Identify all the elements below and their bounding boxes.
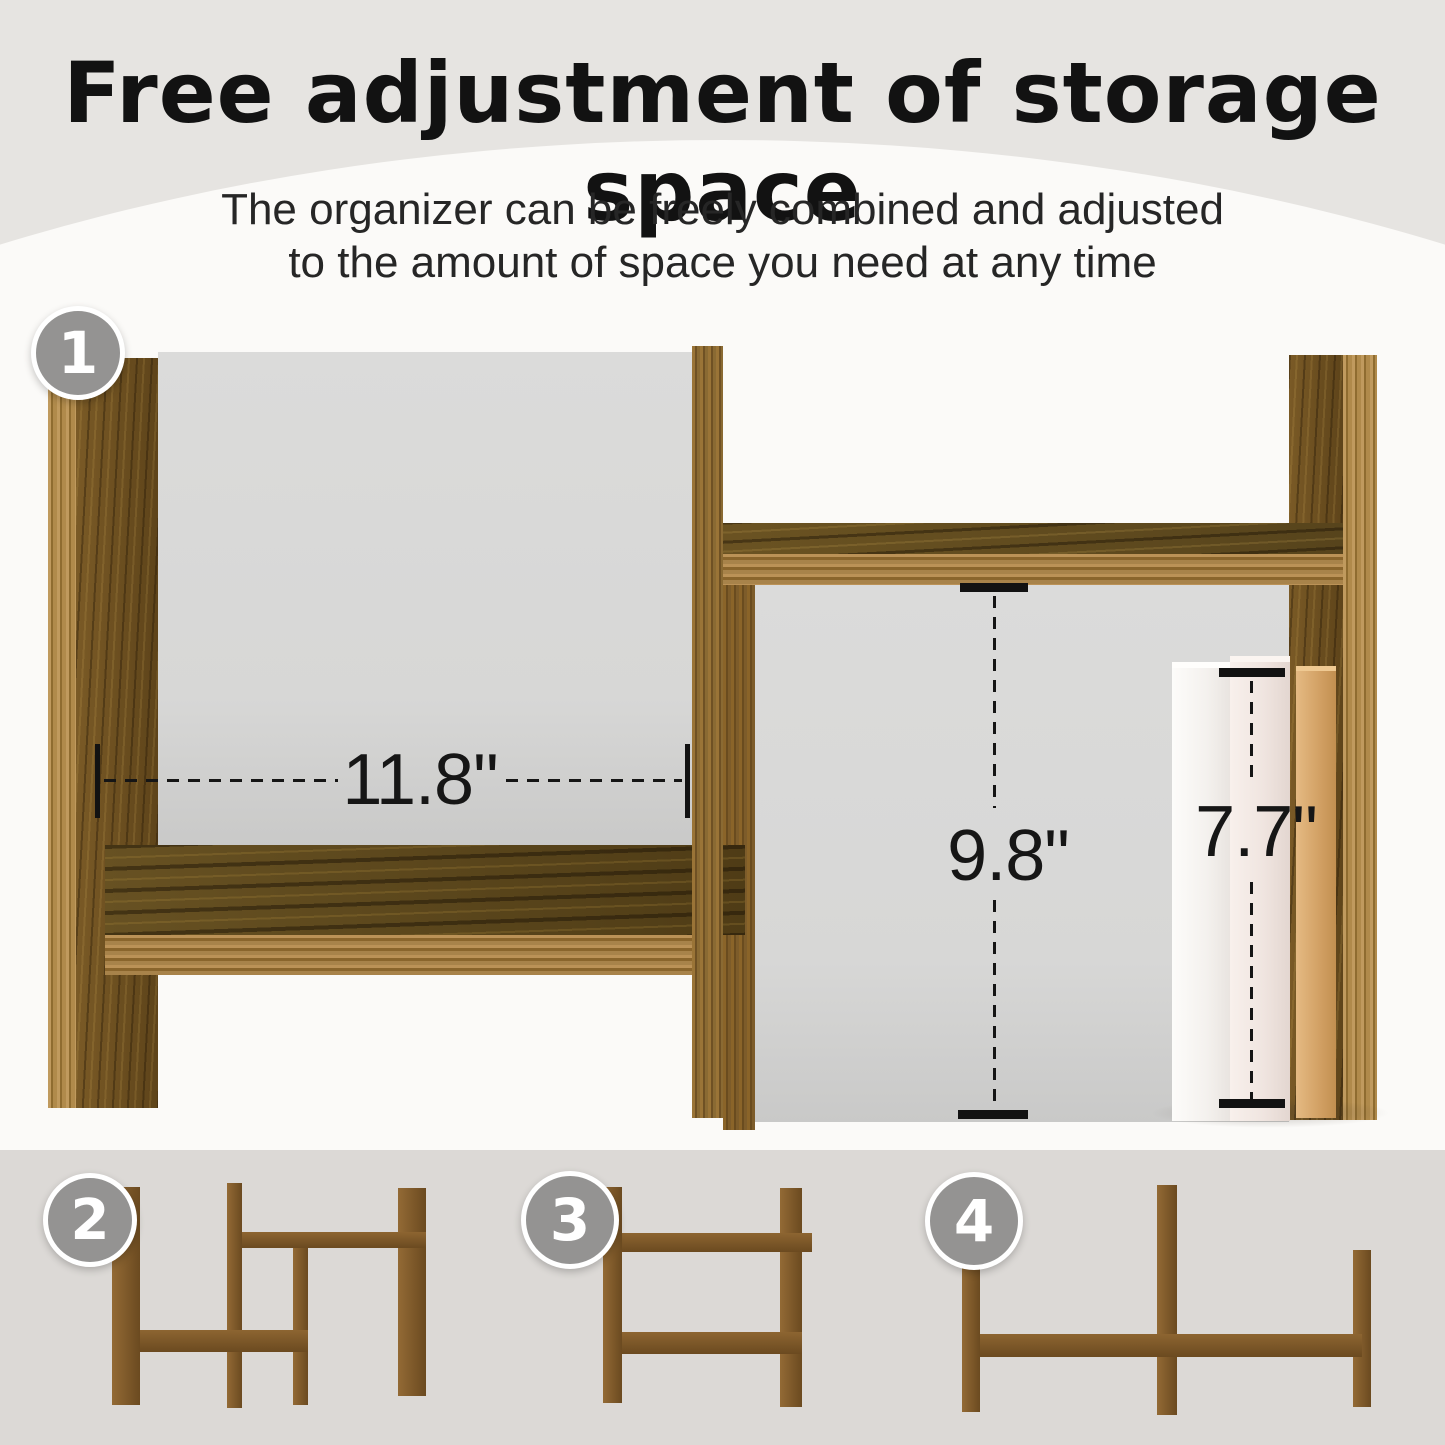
config-number-1: 1 (58, 319, 98, 387)
book-white (1172, 662, 1230, 1121)
config2-bottom-shelf (140, 1330, 308, 1352)
width-dim-dash-left (104, 779, 338, 782)
top-shelf-front-edge (699, 554, 1343, 585)
config-number-2: 2 (71, 1188, 110, 1253)
subtitle-line-2: to the amount of space you need at any t… (0, 238, 1445, 288)
height-dim-dash-top (993, 596, 996, 808)
right-panel-edge (1343, 355, 1377, 1120)
bottom-shelf-front-edge (105, 935, 705, 975)
width-dim-tick-left (95, 744, 100, 818)
book-tan (1296, 666, 1336, 1118)
top-shelf-surface (699, 523, 1343, 554)
config2-inner-panel (293, 1247, 308, 1405)
config2-middle-panel (227, 1183, 242, 1408)
height-dim-tick-bottom (958, 1110, 1028, 1119)
product-infographic: Free adjustment of storage space The org… (0, 0, 1445, 1445)
config-number-3: 3 (550, 1186, 590, 1254)
config4-right-panel (1353, 1250, 1371, 1407)
books-dim-tick-bottom (1219, 1099, 1285, 1108)
config3-top-shelf (622, 1233, 812, 1252)
config4-left-panel (962, 1260, 980, 1412)
config3-right-panel (780, 1188, 802, 1407)
config4-middle-panel (1157, 1185, 1177, 1415)
height-dim-tick-top (960, 583, 1028, 592)
config-badge-2: 2 (43, 1173, 137, 1267)
bottom-shelf-surface (105, 845, 745, 935)
book-cream (1230, 656, 1290, 1121)
width-dim-dash-right (506, 779, 682, 782)
books-dim-dash-top (1250, 681, 1253, 785)
books-dim-tick-top (1219, 668, 1285, 677)
middle-panel (692, 346, 723, 1118)
books-dim-label: 7.7" (1176, 796, 1336, 868)
width-dim-tick-right (685, 744, 690, 818)
left-panel-edge (48, 358, 76, 1108)
config-badge-1: 1 (31, 306, 125, 400)
height-dim-label: 9.8" (928, 820, 1088, 892)
variants-strip (0, 1150, 1445, 1445)
height-dim-dash-bottom (993, 900, 996, 1108)
config-badge-3: 3 (521, 1171, 619, 1269)
width-dim-label: 11.8" (330, 744, 510, 816)
config2-top-shelf (242, 1232, 426, 1248)
config-badge-4: 4 (925, 1172, 1023, 1270)
config-number-4: 4 (954, 1187, 994, 1255)
config4-long-shelf (980, 1334, 1362, 1357)
config2-right-panel (398, 1188, 426, 1396)
left-panel-face (76, 358, 158, 1108)
subtitle-line-1: The organizer can be freely combined and… (0, 185, 1445, 235)
config3-bottom-shelf (622, 1332, 802, 1354)
books-dim-dash-bottom (1250, 882, 1253, 1102)
